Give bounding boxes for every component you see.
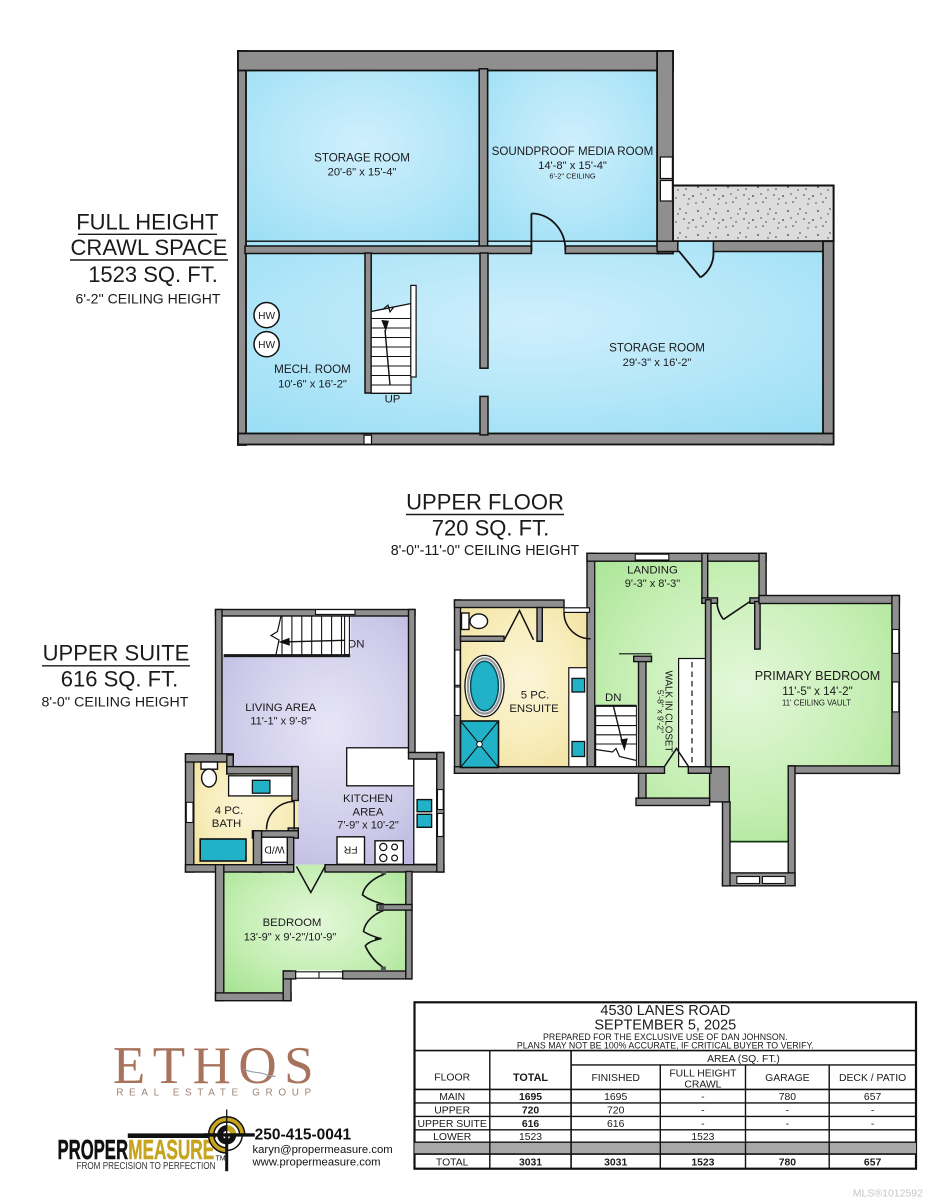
svg-text:780: 780: [779, 1092, 797, 1103]
svg-text:CRAWL SPACE: CRAWL SPACE: [71, 235, 228, 260]
svg-text:4530 LANES ROAD: 4530 LANES ROAD: [600, 1003, 730, 1019]
svg-text:PLANS MAY NOT BE 100% ACCURATE: PLANS MAY NOT BE 100% ACCURATE, IF CRITI…: [517, 1040, 814, 1050]
svg-text:ENSUITE: ENSUITE: [509, 703, 559, 715]
svg-text:-: -: [701, 1119, 704, 1130]
svg-text:-: -: [871, 1119, 874, 1130]
svg-text:REAL ESTATE GROUP: REAL ESTATE GROUP: [116, 1088, 317, 1099]
svg-text:W/D: W/D: [264, 844, 284, 855]
svg-text:FULL HEIGHT: FULL HEIGHT: [669, 1069, 737, 1080]
svg-text:720: 720: [522, 1105, 540, 1116]
svg-text:LIVING AREA: LIVING AREA: [245, 702, 316, 714]
svg-text:616: 616: [522, 1119, 540, 1130]
svg-text:1695: 1695: [519, 1092, 542, 1103]
svg-text:UPPER FLOOR: UPPER FLOOR: [406, 490, 564, 515]
svg-text:657: 657: [864, 1158, 882, 1169]
svg-text:616 SQ. FT.: 616 SQ. FT.: [61, 667, 178, 692]
svg-text:7'-9" x 10'-2": 7'-9" x 10'-2": [337, 820, 399, 832]
svg-text:UPPER SUITE: UPPER SUITE: [43, 641, 190, 666]
svg-text:-: -: [871, 1105, 874, 1116]
svg-text:1523 SQ. FT.: 1523 SQ. FT.: [88, 262, 218, 287]
svg-text:8'-0''-11'-0'' CEILING HEIGHT: 8'-0''-11'-0'' CEILING HEIGHT: [391, 543, 580, 559]
svg-text:CRAWL: CRAWL: [684, 1080, 721, 1091]
svg-text:13'-9" x 9'-2"/10'-9": 13'-9" x 9'-2"/10'-9": [244, 932, 337, 944]
svg-text:780: 780: [779, 1158, 797, 1169]
svg-text:UP: UP: [385, 394, 401, 406]
svg-text:LOWER: LOWER: [433, 1132, 472, 1143]
svg-text:3031: 3031: [604, 1158, 627, 1169]
svg-text:UPPER: UPPER: [434, 1105, 470, 1116]
svg-text:FINISHED: FINISHED: [591, 1073, 640, 1084]
svg-text:MLS®1012592: MLS®1012592: [853, 1188, 923, 1200]
svg-text:www.propermeasure.com: www.propermeasure.com: [252, 1156, 381, 1168]
svg-text:1523: 1523: [691, 1158, 714, 1169]
svg-text:-: -: [786, 1119, 789, 1130]
svg-text:14'-8" x 15'-4": 14'-8" x 15'-4": [538, 160, 607, 172]
svg-text:STORAGE ROOM: STORAGE ROOM: [609, 342, 705, 355]
svg-text:PRIMARY BEDROOM: PRIMARY BEDROOM: [755, 669, 881, 683]
svg-text:HW: HW: [258, 340, 275, 351]
svg-text:11'-1" x 9'-8": 11'-1" x 9'-8": [250, 716, 311, 728]
svg-text:FR: FR: [343, 844, 357, 855]
svg-text:6'-2'' CEILING HEIGHT: 6'-2'' CEILING HEIGHT: [76, 291, 221, 307]
svg-text:6'-2" CEILING: 6'-2" CEILING: [549, 172, 596, 181]
svg-text:FULL HEIGHT: FULL HEIGHT: [76, 210, 218, 235]
svg-text:ETHOS: ETHOS: [113, 1037, 321, 1095]
svg-text:8'-0'' CEILING HEIGHT: 8'-0'' CEILING HEIGHT: [42, 695, 189, 711]
svg-text:657: 657: [864, 1092, 882, 1103]
svg-text:LANDING: LANDING: [627, 565, 678, 577]
svg-text:10'-6" x 16'-2": 10'-6" x 16'-2": [278, 379, 347, 391]
svg-text:TM: TM: [216, 1156, 226, 1163]
svg-text:11'-5" x 14'-2": 11'-5" x 14'-2": [782, 685, 852, 698]
svg-text:MAIN: MAIN: [439, 1092, 465, 1103]
svg-text:3031: 3031: [519, 1158, 542, 1169]
svg-text:20'-6" x 15'-4": 20'-6" x 15'-4": [328, 167, 397, 179]
svg-text:AREA: AREA: [352, 807, 383, 819]
svg-text:SOUNDPROOF MEDIA ROOM: SOUNDPROOF MEDIA ROOM: [492, 145, 654, 158]
svg-text:FLOOR: FLOOR: [434, 1073, 470, 1084]
svg-text:-: -: [786, 1105, 789, 1116]
svg-text:720: 720: [607, 1105, 625, 1116]
svg-text:4 PC.: 4 PC.: [215, 805, 244, 817]
svg-text:GARAGE: GARAGE: [765, 1073, 810, 1084]
svg-text:TOTAL: TOTAL: [436, 1158, 469, 1169]
svg-text:DECK / PATIO: DECK / PATIO: [839, 1073, 906, 1084]
svg-text:DN: DN: [348, 639, 364, 651]
svg-text:5'-8" x 9'-2": 5'-8" x 9'-2": [656, 690, 666, 733]
svg-text:5 PC.: 5 PC.: [521, 690, 550, 702]
svg-text:TOTAL: TOTAL: [513, 1072, 548, 1084]
svg-text:BATH: BATH: [212, 818, 242, 830]
svg-text:karyn@propermeasure.com: karyn@propermeasure.com: [253, 1144, 393, 1156]
svg-text:29'-3" x 16'-2": 29'-3" x 16'-2": [623, 357, 692, 369]
svg-text:11' CEILING VAULT: 11' CEILING VAULT: [782, 699, 851, 708]
svg-text:250-415-0041: 250-415-0041: [255, 1127, 352, 1144]
svg-text:AREA (SQ. FT.): AREA (SQ. FT.): [707, 1054, 780, 1065]
svg-text:DN: DN: [605, 692, 621, 704]
svg-text:720 SQ. FT.: 720 SQ. FT.: [432, 516, 549, 541]
svg-text:MECH. ROOM: MECH. ROOM: [274, 363, 351, 376]
svg-text:KITCHEN: KITCHEN: [343, 793, 393, 805]
svg-text:STORAGE ROOM: STORAGE ROOM: [314, 152, 410, 165]
svg-text:1523: 1523: [519, 1132, 542, 1143]
svg-text:HW: HW: [258, 311, 275, 322]
svg-text:-: -: [701, 1092, 704, 1103]
svg-text:UPPER SUITE: UPPER SUITE: [418, 1119, 487, 1130]
svg-text:1695: 1695: [604, 1092, 627, 1103]
svg-text:1523: 1523: [691, 1132, 714, 1143]
svg-text:-: -: [701, 1105, 704, 1116]
svg-text:616: 616: [607, 1119, 625, 1130]
svg-text:FROM PRECISION TO PERFECTION: FROM PRECISION TO PERFECTION: [77, 1161, 216, 1172]
svg-text:BEDROOM: BEDROOM: [263, 917, 322, 929]
svg-text:9'-3" x 8'-3": 9'-3" x 8'-3": [625, 578, 681, 590]
